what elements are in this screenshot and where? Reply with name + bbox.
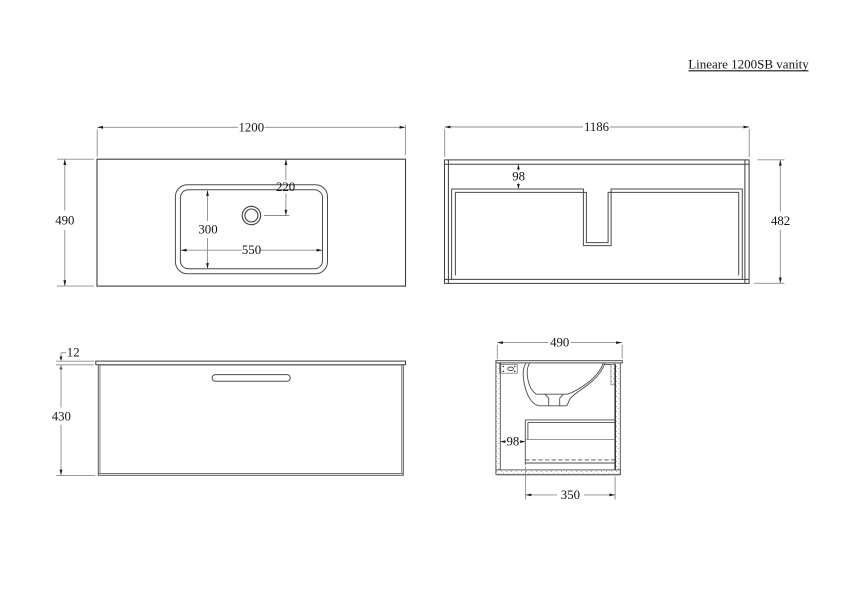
svg-text:Lineare 1200SB vanity: Lineare 1200SB vanity (688, 57, 809, 72)
svg-text:1200: 1200 (239, 121, 265, 135)
svg-text:12: 12 (67, 346, 80, 360)
svg-text:98: 98 (512, 170, 525, 184)
svg-text:430: 430 (52, 409, 71, 423)
svg-text:490: 490 (550, 336, 569, 350)
svg-text:550: 550 (242, 243, 261, 257)
svg-text:350: 350 (561, 488, 580, 502)
svg-text:1186: 1186 (584, 120, 610, 134)
svg-text:98: 98 (507, 435, 520, 449)
svg-text:220: 220 (276, 180, 295, 194)
svg-text:482: 482 (771, 214, 790, 228)
svg-text:300: 300 (198, 223, 217, 237)
svg-text:490: 490 (55, 213, 74, 227)
